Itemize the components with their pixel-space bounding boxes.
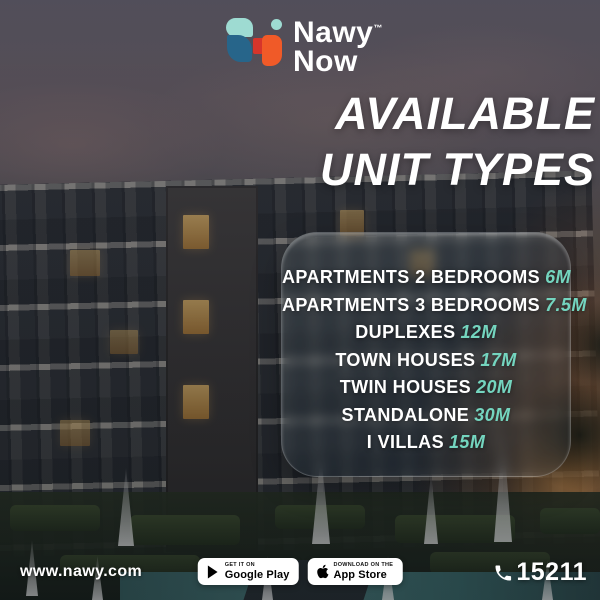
logo-wordmark: Nawy™ Now <box>293 12 383 76</box>
unit-row: DUPLEXES12M <box>282 319 570 347</box>
app-store-badge[interactable]: Download on the App Store <box>307 558 402 585</box>
unit-price: 20M <box>476 377 512 397</box>
unit-label: APARTMENTS 3 BEDROOMS <box>282 295 540 315</box>
unit-label: APARTMENTS 2 BEDROOMS <box>282 267 540 287</box>
brand-name-bottom: Now <box>293 45 358 78</box>
unit-label: TWIN HOUSES <box>340 377 471 397</box>
google-play-badge[interactable]: GET IT ON Google Play <box>198 558 299 585</box>
unit-label: TOWN HOUSES <box>335 350 475 370</box>
unit-label: STANDALONE <box>342 405 470 425</box>
google-play-label: Google Play <box>225 570 290 581</box>
google-play-tagline: GET IT ON <box>225 563 290 569</box>
play-store-icon <box>207 565 220 579</box>
nawy-logo-icon <box>226 12 282 72</box>
poster: Nawy™ Now AVAILABLE UNIT TYPES APARTMENT… <box>0 0 600 600</box>
unit-price: 6M <box>545 267 571 287</box>
unit-list: APARTMENTS 2 BEDROOMS6MAPARTMENTS 3 BEDR… <box>282 264 570 457</box>
unit-label: DUPLEXES <box>355 322 455 342</box>
phone-icon <box>493 563 513 583</box>
unit-row: TWIN HOUSES20M <box>282 374 570 402</box>
unit-price: 12M <box>461 322 497 342</box>
logo-shape-dot <box>271 19 282 30</box>
nawy-now-logo: Nawy™ Now <box>226 12 383 76</box>
app-store-label: App Store <box>333 570 393 581</box>
app-store-tagline: Download on the <box>333 563 393 569</box>
unit-price: 15M <box>449 432 485 452</box>
unit-row: APARTMENTS 2 BEDROOMS6M <box>282 264 570 292</box>
apple-icon <box>316 564 328 579</box>
phone-number: 15211 <box>516 558 587 587</box>
unit-label: I VILLAS <box>367 432 444 452</box>
logo-shape-blue <box>227 35 252 62</box>
unit-row: I VILLAS15M <box>282 429 570 457</box>
unit-price: 17M <box>480 350 516 370</box>
trademark-symbol: ™ <box>373 23 383 33</box>
store-badges: GET IT ON Google Play Download on the Ap… <box>198 558 403 585</box>
headline-line1: AVAILABLE <box>320 86 595 142</box>
unit-row: APARTMENTS 3 BEDROOMS7.5M <box>282 292 570 320</box>
headline-line2: UNIT TYPES <box>320 142 595 198</box>
page-title: AVAILABLE UNIT TYPES <box>320 86 595 198</box>
unit-row: STANDALONE30M <box>282 402 570 430</box>
phone-contact[interactable]: 15211 <box>493 558 587 587</box>
unit-row: TOWN HOUSES17M <box>282 347 570 375</box>
website-link[interactable]: www.nawy.com <box>20 563 142 581</box>
logo-shape-orange <box>262 35 282 66</box>
unit-price: 7.5M <box>545 295 587 315</box>
unit-price: 30M <box>474 405 510 425</box>
unit-types-panel: APARTMENTS 2 BEDROOMS6MAPARTMENTS 3 BEDR… <box>281 232 571 477</box>
